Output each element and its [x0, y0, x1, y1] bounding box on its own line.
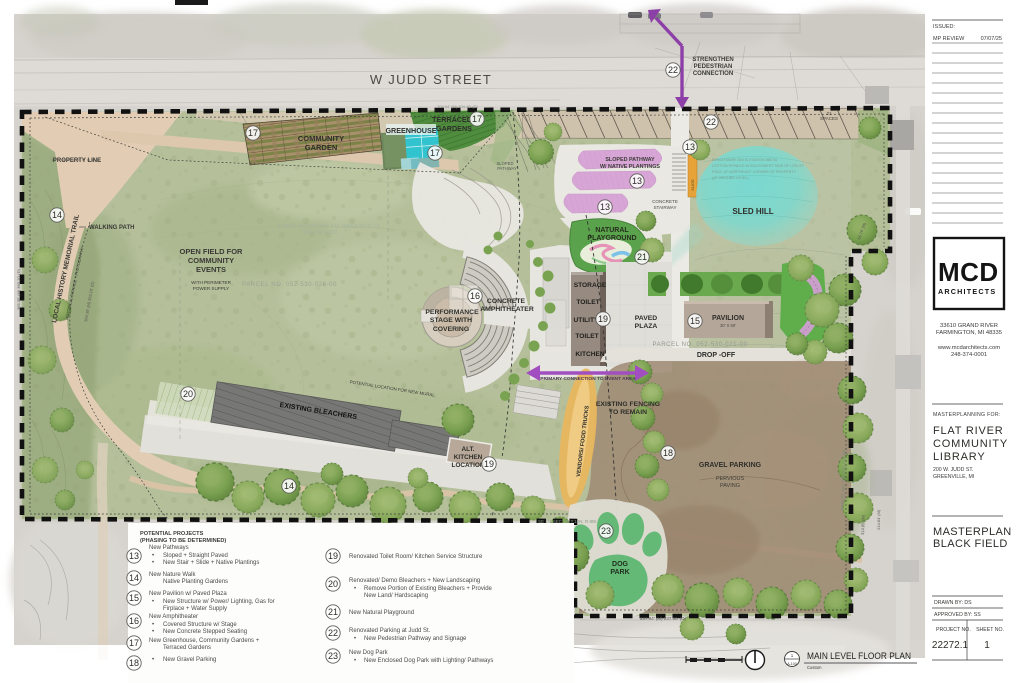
svg-text:30' X 60': 30' X 60': [720, 323, 736, 328]
svg-text:•: •: [152, 657, 154, 663]
svg-text:Covered Structure w/ Stage: Covered Structure w/ Stage: [163, 622, 237, 628]
svg-text:GREENHOUSE: GREENHOUSE: [385, 126, 436, 135]
svg-text:WITH PERIMETER: WITH PERIMETER: [191, 280, 231, 285]
svg-text:•: •: [152, 629, 154, 635]
svg-text:14: 14: [284, 481, 294, 491]
svg-text:POLE, AT NORTHEAST CORNER OF P: POLE, AT NORTHEAST CORNER OF PROPERTY: [712, 170, 797, 174]
svg-text:19: 19: [484, 459, 494, 469]
svg-text:New Stair + Slide + Native Pla: New Stair + Slide + Native Plantings: [163, 560, 259, 566]
svg-text:22: 22: [328, 628, 338, 638]
svg-text:21: 21: [637, 252, 647, 262]
svg-text:LIBRARY: LIBRARY: [933, 451, 985, 463]
svg-text:13: 13: [632, 176, 642, 186]
svg-text:APPROVED BY: SS: APPROVED BY: SS: [934, 612, 981, 618]
svg-text:19: 19: [598, 314, 608, 324]
svg-text:15: 15: [690, 316, 700, 326]
svg-text:15: 15: [129, 593, 139, 603]
svg-text:07/07/25: 07/07/25: [981, 36, 1002, 42]
svg-text:22: 22: [706, 117, 716, 127]
svg-text:SLIDE: SLIDE: [690, 179, 695, 191]
svg-text:SPACES: SPACES: [820, 116, 838, 121]
svg-text:PERVIOUS: PERVIOUS: [716, 476, 745, 482]
svg-text:MP REVIEW: MP REVIEW: [933, 36, 965, 42]
svg-text:1: 1: [984, 640, 990, 651]
svg-text:314.85' (M): 314.85' (M): [860, 514, 866, 535]
svg-text:•: •: [354, 636, 356, 642]
svg-text:23: 23: [328, 651, 338, 661]
svg-text:PRIMARY CONNECTION TO EVENT AR: PRIMARY CONNECTION TO EVENT AREA: [540, 376, 636, 382]
svg-text:GARDEN: GARDEN: [305, 143, 338, 152]
svg-text:704.94' (M) 704.46' (D): 704.94' (M) 704.46' (D): [437, 104, 479, 109]
svg-text:TOILET: TOILET: [576, 299, 599, 306]
svg-text:22: 22: [668, 65, 678, 75]
svg-text:New Pavilion w/ Paved Plaza: New Pavilion w/ Paved Plaza: [149, 591, 227, 597]
svg-text:BENCH MARK 500 ELEVATION 8: BENCH MARK 500 ELEVATION 880.06: [712, 158, 777, 162]
svg-text:DRAWN BY: DS: DRAWN BY: DS: [934, 600, 972, 606]
svg-text:New Concrete Stepped Seating: New Concrete Stepped Seating: [163, 629, 247, 635]
svg-text:13: 13: [600, 202, 610, 212]
svg-text:SHEET NO.: SHEET NO.: [976, 627, 1004, 633]
svg-text:COTTON SPINDLE IN SOUTHWEST SI: COTTON SPINDLE IN SOUTHWEST SIDE OF UTIL…: [712, 164, 805, 168]
svg-text:MASTERPLANNING FOR:: MASTERPLANNING FOR:: [933, 412, 1001, 418]
svg-text:MCD: MCD: [938, 257, 999, 287]
svg-text:PROJECT NO.: PROJECT NO.: [936, 627, 971, 633]
svg-text:W/ NATIVE PLANTINGS: W/ NATIVE PLANTINGS: [600, 164, 660, 170]
svg-text:PAVILION: PAVILION: [712, 315, 744, 322]
svg-text:SLOPED PATHWAY: SLOPED PATHWAY: [605, 157, 655, 163]
svg-text:EVENTS: EVENTS: [196, 265, 226, 274]
svg-text:16: 16: [470, 291, 480, 301]
svg-text:TO REMAIN: TO REMAIN: [609, 409, 647, 416]
svg-text:MASTERPLAN: MASTERPLAN: [933, 526, 1012, 538]
svg-text:CONCRETE: CONCRETE: [487, 298, 526, 305]
svg-text:COVERING: COVERING: [433, 326, 469, 333]
svg-text:PERFORMANCE: PERFORMANCE: [425, 309, 479, 316]
svg-text:•: •: [152, 553, 154, 559]
svg-text:ISSUED:: ISSUED:: [933, 24, 955, 30]
svg-text:GARDENS: GARDENS: [436, 124, 472, 133]
svg-text:PARK: PARK: [610, 569, 629, 576]
svg-text:•: •: [152, 560, 154, 566]
svg-text:COMMUNITY: COMMUNITY: [188, 256, 234, 265]
svg-text:•: •: [354, 658, 356, 664]
svg-text:Terraced Gardens: Terraced Gardens: [163, 645, 211, 651]
svg-text:FARMINGTON, MI 48335: FARMINGTON, MI 48335: [936, 330, 1002, 336]
svg-text:KITCHEN: KITCHEN: [575, 351, 605, 358]
svg-text:Remove Portion of Existing Ble: Remove Portion of Existing Bleachers + P…: [364, 586, 493, 592]
svg-text:DROP -OFF: DROP -OFF: [697, 352, 736, 359]
svg-text:(PHASING TO BE DETERMINED): (PHASING TO BE DETERMINED): [140, 538, 226, 544]
svg-text:New Gravel Parking: New Gravel Parking: [163, 657, 216, 663]
svg-text:20: 20: [183, 389, 193, 399]
svg-text:Renovated/ Demo Bleachers + Ne: Renovated/ Demo Bleachers + New Landscap…: [349, 578, 480, 584]
svg-text:New Nature Walk: New Nature Walk: [149, 572, 196, 578]
svg-text:New Structure w/ Power/ Lighti: New Structure w/ Power/ Lighting, Gas fo…: [163, 599, 275, 605]
svg-text:21: 21: [328, 607, 338, 617]
svg-text:PARCEL NO. 052-530-021-00: PARCEL NO. 052-530-021-00: [652, 342, 747, 348]
svg-text:16: 16: [129, 616, 139, 626]
svg-text:237.84' (M) 237.50' (D): 237.84' (M) 237.50' (D): [640, 616, 686, 621]
svg-text:Sloped + Straight Paved: Sloped + Straight Paved: [163, 553, 228, 559]
svg-text:STAIRWAY: STAIRWAY: [653, 205, 676, 210]
svg-text:BLACK FIELD: BLACK FIELD: [933, 538, 1008, 550]
svg-text:18: 18: [129, 658, 139, 668]
svg-text:DOG: DOG: [612, 561, 629, 568]
svg-text:New Land/ Hardscaping: New Land/ Hardscaping: [364, 593, 428, 599]
svg-text:W JUDD STREET: W JUDD STREET: [370, 72, 492, 87]
svg-text:New Greenhouse, Community Gard: New Greenhouse, Community Gardens +: [149, 638, 260, 644]
svg-text:17: 17: [248, 128, 258, 138]
svg-text:PAVING: PAVING: [720, 483, 740, 489]
svg-text:23: 23: [601, 526, 611, 536]
svg-text:(AT GROUND LEVEL): (AT GROUND LEVEL): [712, 176, 749, 180]
svg-text:PATHWAY: PATHWAY: [497, 166, 517, 171]
svg-text:GREENVILLE, MI: GREENVILLE, MI: [933, 474, 974, 480]
svg-text:13: 13: [685, 142, 695, 152]
svg-text:33610 GRAND RIVER: 33610 GRAND RIVER: [940, 323, 998, 329]
svg-text:18: 18: [663, 448, 673, 458]
svg-text:200 W. JUDD ST.: 200 W. JUDD ST.: [933, 467, 973, 473]
svg-text:New Amphitheater: New Amphitheater: [149, 614, 198, 620]
svg-text:COMMUNITY: COMMUNITY: [933, 438, 1008, 450]
svg-text:CONCRETE: CONCRETE: [652, 199, 678, 204]
svg-text:OPEN FIELD FOR: OPEN FIELD FOR: [180, 247, 244, 256]
svg-text:WALKING PATH: WALKING PATH: [89, 225, 134, 231]
svg-text:22272.1: 22272.1: [932, 640, 969, 651]
svg-text:www.mcdarchitects.com: www.mcdarchitects.com: [937, 345, 1000, 351]
svg-text:STRENGTHEN: STRENGTHEN: [692, 57, 733, 63]
svg-text:13: 13: [129, 551, 139, 561]
svg-text:COMMUNITY: COMMUNITY: [298, 134, 344, 143]
svg-text:STAGE WITH: STAGE WITH: [430, 317, 472, 324]
svg-text:EXISTING FENCING: EXISTING FENCING: [596, 401, 660, 408]
svg-text:New Pedestrian Pathway and Sig: New Pedestrian Pathway and Signage: [364, 636, 467, 642]
svg-text:17: 17: [472, 114, 482, 124]
svg-text:TOILET: TOILET: [575, 333, 598, 340]
svg-text:GRAVEL PARKING: GRAVEL PARKING: [699, 462, 762, 469]
svg-text:PROPERTY LINE: PROPERTY LINE: [53, 158, 101, 164]
svg-text:Custom: Custom: [807, 665, 822, 670]
svg-text:PAVED: PAVED: [635, 315, 657, 322]
svg-text:365.35' (M) 363.10' (D): 365.35' (M) 363.10' (D): [16, 268, 21, 310]
svg-text:New Natural Playground: New Natural Playground: [349, 610, 414, 616]
svg-text:OFF 152 & 153: OFF 152 & 153: [303, 230, 337, 236]
svg-text:214.84' (M): 214.84' (M): [876, 509, 881, 530]
svg-text:PLAYGROUND: PLAYGROUND: [587, 235, 636, 242]
svg-text:MAIN LEVEL FLOOR PLAN: MAIN LEVEL FLOOR PLAN: [807, 651, 911, 662]
svg-text:•: •: [152, 622, 154, 628]
svg-text:ALT.: ALT.: [461, 446, 474, 453]
svg-text:POTENTIAL PROJECTS: POTENTIAL PROJECTS: [140, 531, 204, 537]
svg-text:19: 19: [328, 551, 338, 561]
svg-text:TERRACED: TERRACED: [432, 115, 472, 124]
svg-text:POWER SUPPLY: POWER SUPPLY: [193, 286, 229, 291]
svg-text:17: 17: [430, 148, 440, 158]
svg-text:Firplace + Water Supply: Firplace + Water Supply: [163, 606, 227, 612]
svg-text:14: 14: [52, 210, 62, 220]
svg-text:KITCHEN: KITCHEN: [454, 454, 483, 461]
svg-text:17: 17: [129, 638, 139, 648]
svg-text:20: 20: [328, 579, 338, 589]
svg-text:Renovated Parking at Judd St.: Renovated Parking at Judd St.: [349, 628, 431, 634]
svg-text:PARCEL NO. 052-530-026-00: PARCEL NO. 052-530-026-00: [242, 282, 337, 288]
svg-text:ARCHITECTS: ARCHITECTS: [938, 287, 996, 296]
svg-text:New Dog Park: New Dog Park: [349, 650, 389, 656]
svg-text:Renovated Toilet Room/ Kitchen: Renovated Toilet Room/ Kitchen Service S…: [349, 554, 483, 560]
svg-text:AMPHITHEATER: AMPHITHEATER: [480, 306, 534, 313]
svg-text:Native Planting Gardens: Native Planting Gardens: [163, 579, 228, 585]
svg-text:NATURAL: NATURAL: [595, 227, 629, 234]
svg-text:A-100: A-100: [787, 662, 797, 666]
svg-text:New Pathways: New Pathways: [149, 545, 189, 551]
svg-text:CONNECTION: CONNECTION: [693, 71, 733, 77]
svg-text:14: 14: [129, 573, 139, 583]
svg-text:UTILITY: UTILITY: [574, 317, 600, 324]
svg-text:SLED HILL: SLED HILL: [732, 207, 773, 216]
svg-text:LOCATION: LOCATION: [452, 462, 485, 469]
svg-text:PEDESTRIAN: PEDESTRIAN: [694, 64, 733, 70]
svg-text:•: •: [354, 586, 356, 592]
svg-text:248-374-0001: 248-374-0001: [951, 352, 987, 358]
svg-text:PLAZA: PLAZA: [635, 323, 658, 330]
svg-text:•: •: [152, 599, 154, 605]
svg-text:STORAGE: STORAGE: [574, 282, 607, 289]
svg-text:FLAT RIVER: FLAT RIVER: [933, 425, 1004, 437]
svg-text:New Enclosed Dog Park with Lig: New Enclosed Dog Park with Lighting/ Pat…: [364, 658, 493, 664]
